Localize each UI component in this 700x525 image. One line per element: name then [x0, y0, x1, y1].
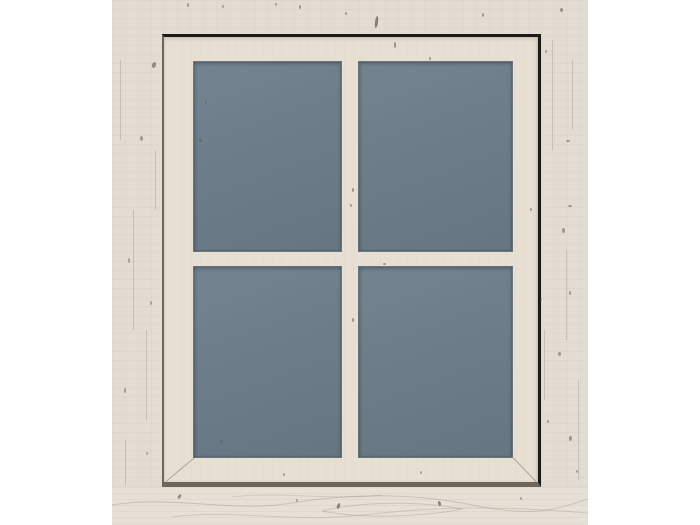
frame-miter-joint-bottom-right — [513, 457, 537, 481]
wood-grain-texture — [112, 487, 588, 525]
glass-pane-bottom-right — [358, 266, 513, 458]
frame-miter-joint-bottom-left — [166, 457, 195, 482]
window-reveal-shadow — [162, 34, 541, 487]
glass-pane-bottom-left — [193, 266, 342, 458]
glass-pane-top-left — [193, 61, 342, 252]
product-photo — [0, 0, 700, 525]
window-frame — [164, 37, 538, 482]
wood-wall-bottom-plank — [112, 487, 588, 525]
glass-pane-top-right — [358, 61, 513, 252]
mullion-horizontal — [193, 252, 513, 266]
